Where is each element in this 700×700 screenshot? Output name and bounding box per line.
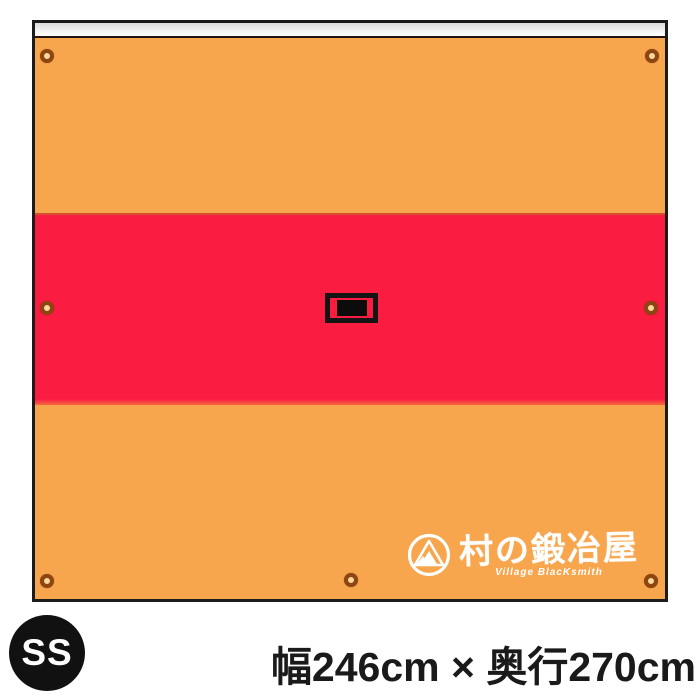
grommet-eyelet-icon xyxy=(344,573,358,587)
grommet-eyelet-icon xyxy=(644,301,658,315)
product-image: 村の鍛冶屋 Village BlacKsmith SS 幅246cm × 奥行2… xyxy=(0,0,700,700)
sheet-top-hem xyxy=(35,23,665,38)
grommet-eyelet-icon xyxy=(40,301,54,315)
grommet-eyelet-icon xyxy=(40,574,54,588)
ground-sheet: 村の鍛冶屋 Village BlacKsmith xyxy=(32,20,668,602)
grommet-eyelet-icon xyxy=(645,49,659,63)
dimensions-text: 幅246cm × 奥行270cm xyxy=(271,633,696,693)
carry-handle-slot xyxy=(337,300,367,316)
mountain-circle-emblem-icon xyxy=(406,532,452,578)
size-badge: SS xyxy=(9,615,85,691)
brand-logo-text: 村の鍛冶屋 Village BlacKsmith xyxy=(459,531,639,578)
carry-handle-icon xyxy=(325,293,378,323)
brand-name-jp: 村の鍛冶屋 xyxy=(459,529,640,572)
grommet-eyelet-icon xyxy=(40,49,54,63)
grommet-eyelet-icon xyxy=(644,574,658,588)
size-badge-label: SS xyxy=(21,632,72,674)
brand-logo: 村の鍛冶屋 Village BlacKsmith xyxy=(406,531,639,578)
